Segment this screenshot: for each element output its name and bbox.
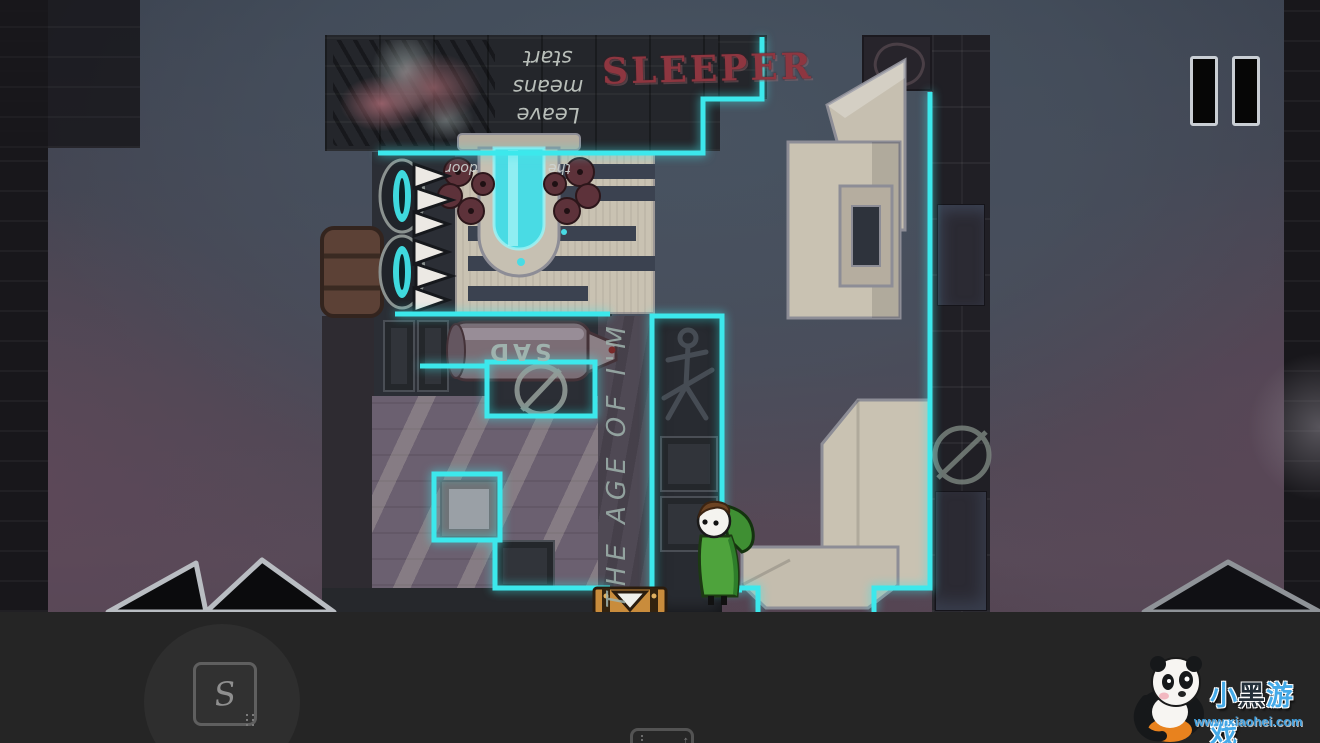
watermark-url: www.xiaohei.com bbox=[1194, 714, 1303, 729]
box-with-window bbox=[788, 142, 900, 318]
shadow-skill-place-button[interactable]: S bbox=[193, 662, 257, 726]
game-screen: SLEEPER Leave means start door the SAD T… bbox=[0, 0, 1320, 743]
barrel bbox=[322, 228, 382, 316]
pause-bar-icon bbox=[1190, 56, 1218, 126]
graffiti-age-of: THE AGE OF I'M bbox=[602, 320, 632, 608]
brand-char-black: 黑 bbox=[1238, 681, 1266, 711]
panda-mascot-icon bbox=[1124, 652, 1224, 743]
no-sign bbox=[935, 428, 989, 482]
arrow-up-icon: ↑ bbox=[683, 734, 690, 743]
pause-button[interactable] bbox=[1190, 56, 1260, 126]
shadow-skill-swap-button[interactable]: S ↓ ↑ bbox=[630, 728, 694, 743]
dots-icon bbox=[246, 714, 248, 716]
graffiti-sad: SAD bbox=[486, 338, 551, 364]
brand-char: 小 bbox=[1210, 681, 1238, 711]
graffiti-leave-means-start: Leave means start bbox=[490, 44, 606, 129]
stick-figure-scratch bbox=[664, 330, 712, 418]
watermark-brand: 小黑游戏 bbox=[1210, 674, 1320, 743]
graffiti-sleeper: SLEEPER bbox=[601, 45, 814, 93]
graffiti-door-left: door bbox=[446, 160, 478, 176]
graffiti-door-right: the bbox=[548, 160, 571, 176]
eye-monster bbox=[380, 160, 452, 312]
pause-bar-icon bbox=[1232, 56, 1260, 126]
skill-letter: S bbox=[212, 674, 238, 714]
dotted-line-icon bbox=[641, 735, 643, 743]
watermark: 小黑游戏 www.xiaohei.com bbox=[1124, 652, 1320, 743]
